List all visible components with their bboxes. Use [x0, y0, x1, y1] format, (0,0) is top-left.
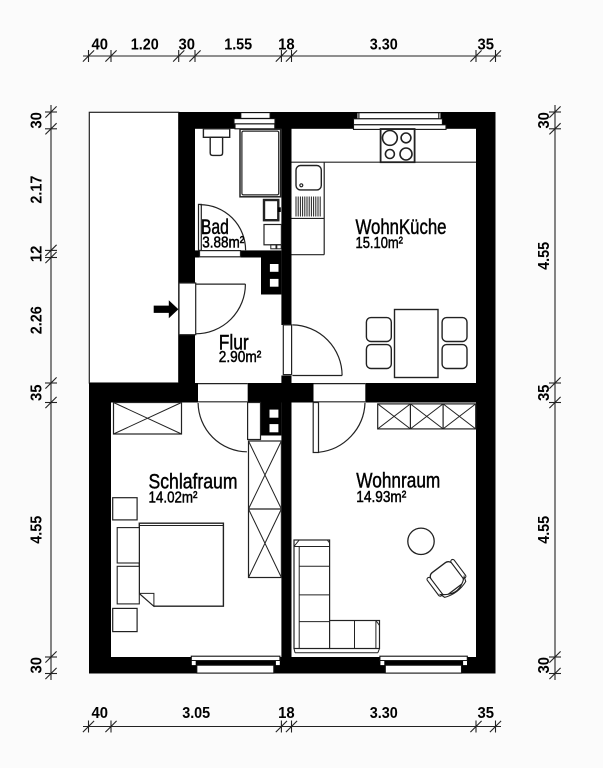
svg-text:3.30: 3.30: [370, 37, 398, 54]
svg-text:14.02m²: 14.02m²: [149, 490, 199, 507]
svg-text:30: 30: [536, 112, 553, 128]
svg-text:18: 18: [278, 705, 295, 722]
svg-text:4.55: 4.55: [29, 515, 46, 543]
svg-text:35: 35: [478, 37, 495, 54]
svg-text:30: 30: [29, 112, 46, 128]
svg-text:30: 30: [179, 37, 196, 54]
svg-text:3.88m²: 3.88m²: [202, 234, 245, 251]
svg-text:3.30: 3.30: [370, 705, 398, 722]
svg-text:2.26: 2.26: [29, 306, 46, 334]
svg-text:4.55: 4.55: [536, 242, 553, 270]
svg-text:35: 35: [29, 384, 46, 401]
svg-text:15.10m²: 15.10m²: [356, 235, 404, 252]
svg-text:4.55: 4.55: [536, 515, 553, 543]
svg-text:12: 12: [29, 246, 46, 263]
svg-text:1.20: 1.20: [131, 37, 159, 54]
svg-text:35: 35: [478, 705, 495, 722]
svg-text:30: 30: [29, 657, 46, 674]
svg-text:30: 30: [536, 657, 553, 674]
svg-text:2.17: 2.17: [29, 176, 46, 204]
svg-text:2.90m²: 2.90m²: [219, 349, 262, 366]
svg-text:1.55: 1.55: [224, 37, 252, 54]
svg-text:14.93m²: 14.93m²: [356, 489, 407, 506]
svg-text:18: 18: [278, 37, 295, 54]
svg-text:40: 40: [92, 37, 109, 54]
svg-text:35: 35: [536, 384, 553, 401]
svg-text:3.05: 3.05: [182, 705, 210, 722]
svg-text:40: 40: [92, 705, 109, 722]
